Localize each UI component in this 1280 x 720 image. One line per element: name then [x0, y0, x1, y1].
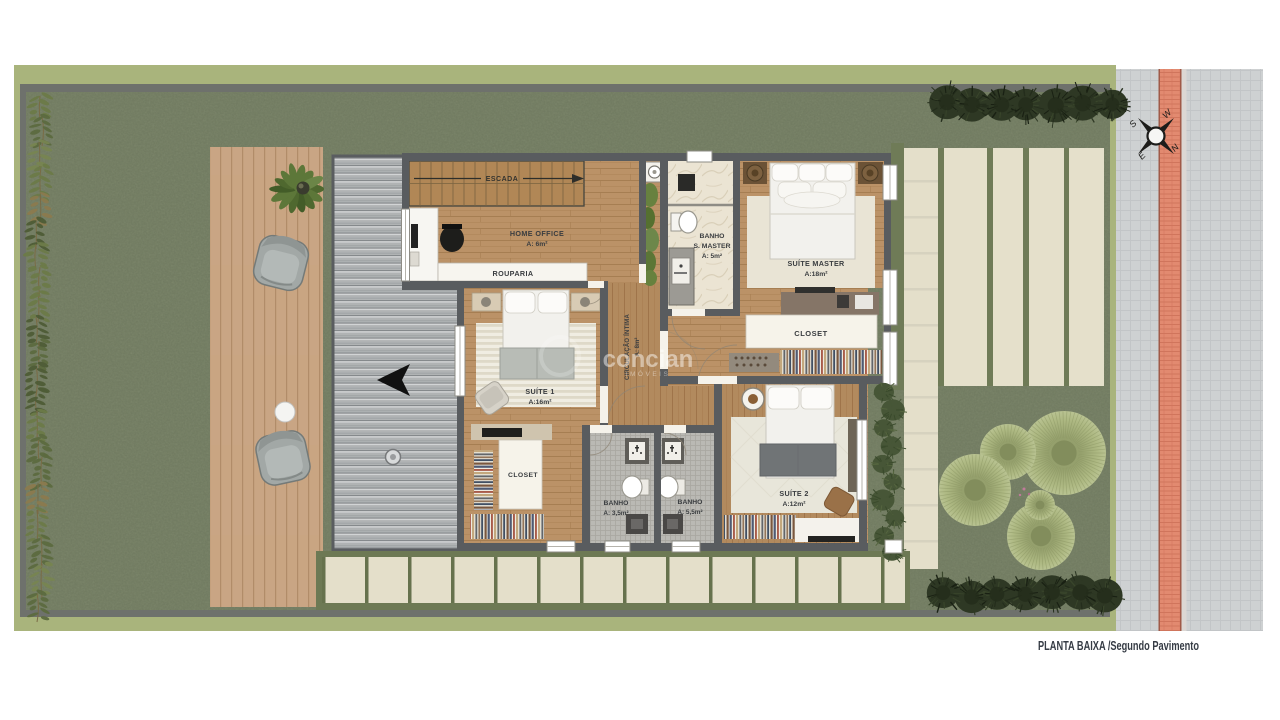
svg-text:IMÓVEIS: IMÓVEIS: [626, 369, 671, 378]
svg-text:ESCADA: ESCADA: [486, 176, 519, 183]
svg-text:A: 5,5m²: A: 5,5m²: [677, 509, 702, 516]
svg-text:ROUPARIA: ROUPARIA: [492, 269, 533, 278]
svg-text:BANHO: BANHO: [700, 233, 725, 240]
svg-text:PLANTA BAIXA /Segundo Paviment: PLANTA BAIXA /Segundo Pavimento: [1038, 638, 1199, 653]
svg-text:BANHO: BANHO: [678, 499, 703, 506]
svg-text:CLOSET: CLOSET: [508, 472, 538, 479]
svg-text:A:12m²: A:12m²: [782, 501, 806, 508]
svg-text:HOME OFFICE: HOME OFFICE: [510, 229, 564, 238]
svg-text:SUÍTE 1: SUÍTE 1: [525, 387, 554, 396]
svg-text:A: 5m²: A: 5m²: [702, 253, 723, 260]
svg-text:A:16m²: A:16m²: [528, 399, 552, 406]
svg-text:SUÍTE MASTER: SUÍTE MASTER: [787, 259, 845, 268]
svg-text:SUÍTE 2: SUÍTE 2: [779, 489, 808, 498]
svg-text:S. MASTER: S. MASTER: [693, 243, 730, 250]
svg-text:CLOSET: CLOSET: [794, 329, 827, 338]
svg-text:BANHO: BANHO: [604, 500, 629, 507]
svg-text:concian: concian: [603, 346, 694, 373]
svg-text:A:18m²: A:18m²: [804, 271, 828, 278]
svg-text:A: 3,5m²: A: 3,5m²: [603, 510, 628, 517]
svg-text:A: 6m²: A: 6m²: [526, 241, 548, 248]
